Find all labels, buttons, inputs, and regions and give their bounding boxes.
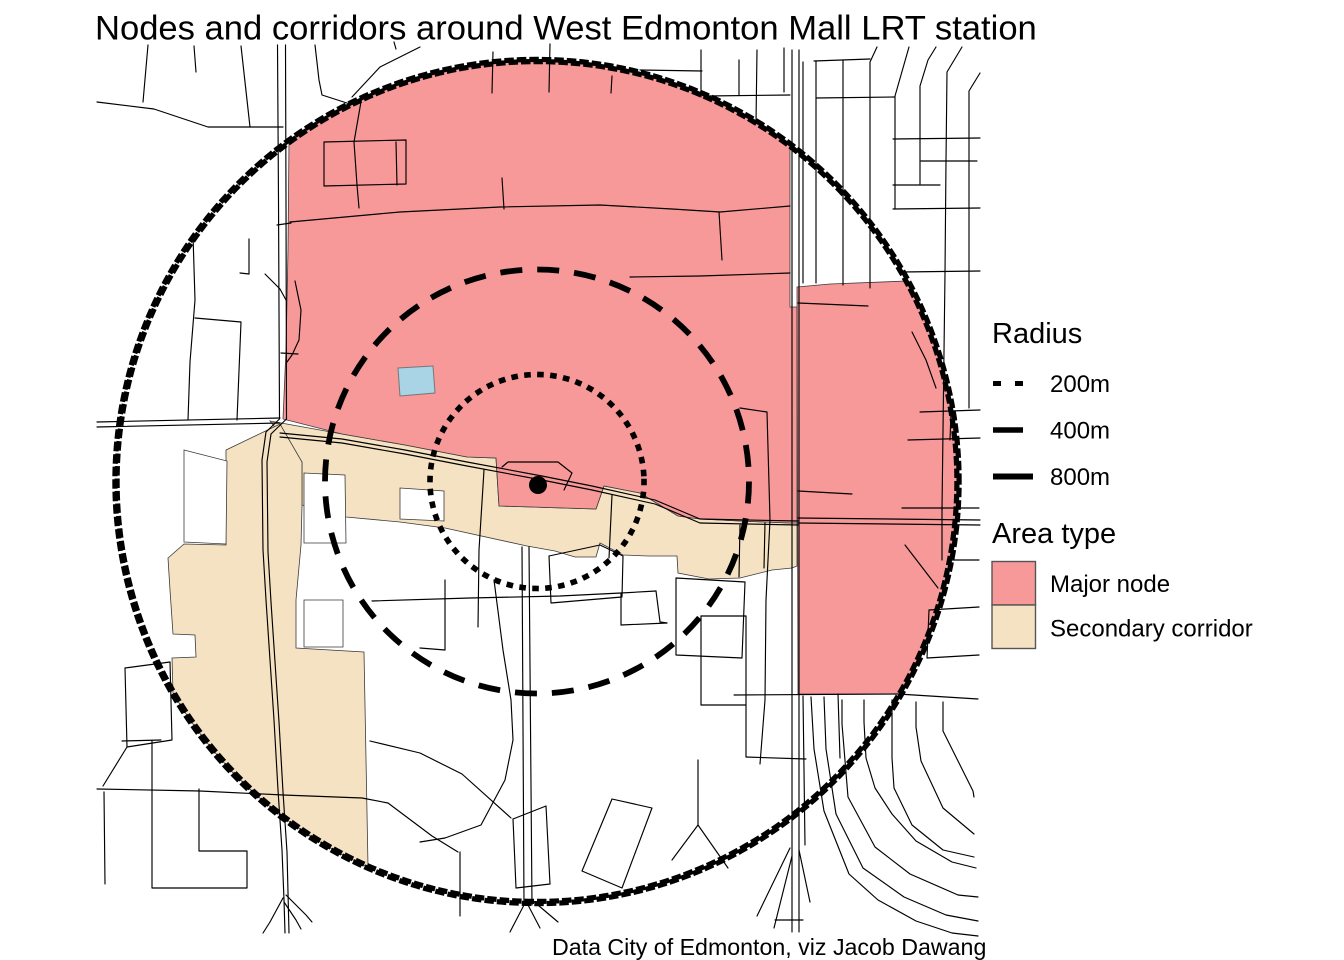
- svg-text:Data City of Edmonton, viz Jac: Data City of Edmonton, viz Jacob Dawang: [552, 934, 986, 960]
- svg-text:Major node: Major node: [1050, 571, 1170, 598]
- svg-text:Area type: Area type: [992, 518, 1116, 550]
- svg-text:Radius: Radius: [992, 318, 1082, 350]
- svg-text:Secondary corridor: Secondary corridor: [1050, 616, 1253, 643]
- svg-text:200m: 200m: [1050, 371, 1110, 398]
- svg-text:400m: 400m: [1050, 418, 1110, 445]
- svg-text:800m: 800m: [1050, 464, 1110, 491]
- svg-text:Nodes and corridors around Wes: Nodes and corridors around West Edmonton…: [95, 10, 1037, 48]
